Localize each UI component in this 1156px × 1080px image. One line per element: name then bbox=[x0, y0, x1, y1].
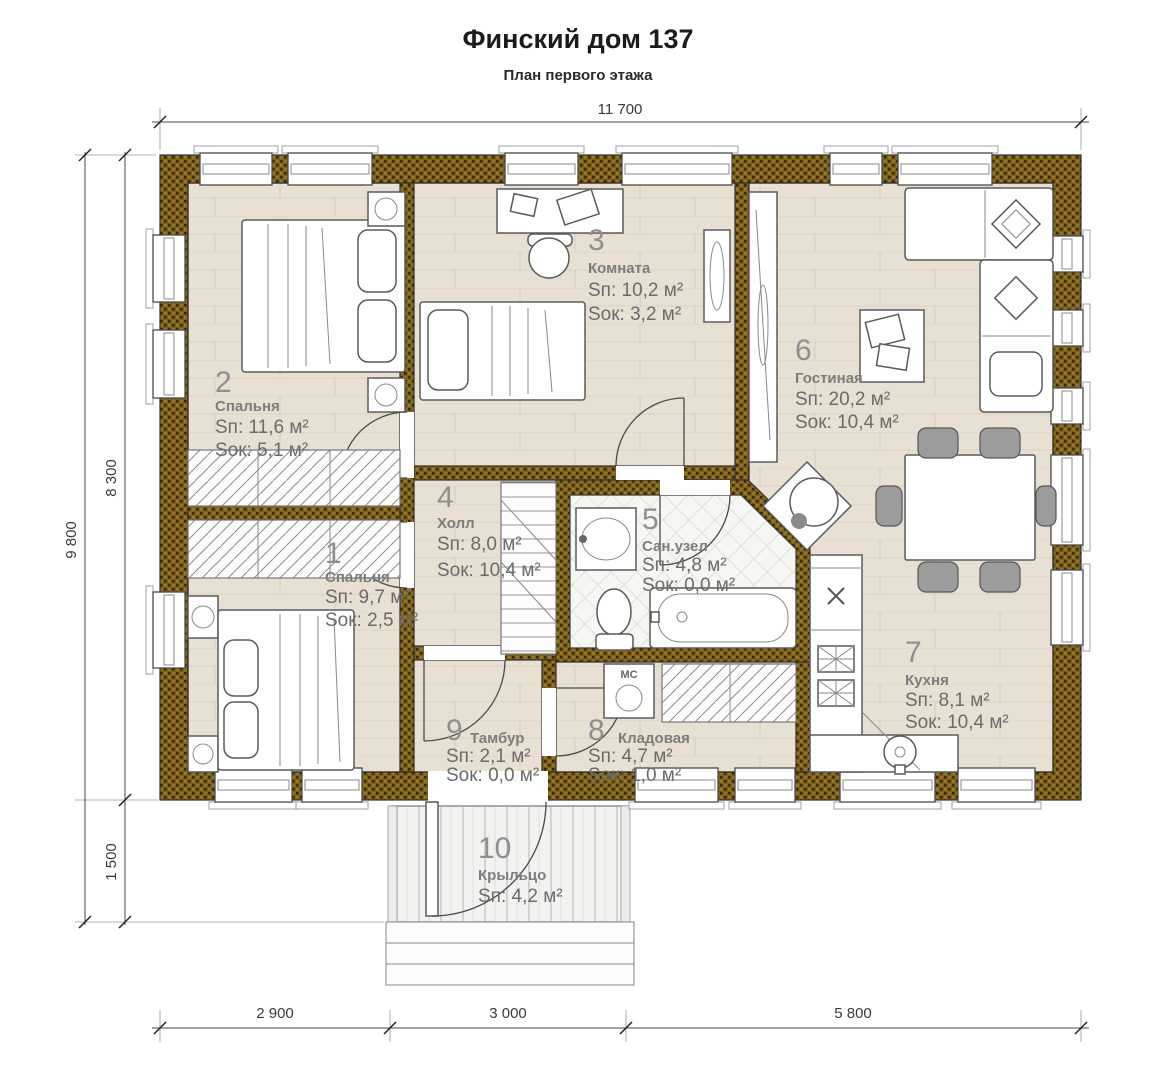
window bbox=[952, 768, 1041, 809]
window bbox=[282, 146, 378, 185]
room-area-floor: Sп: 20,2 м² bbox=[795, 389, 890, 410]
room-name: Гостиная bbox=[795, 370, 863, 387]
pillow bbox=[224, 702, 258, 758]
header: Финский дом 137 План первого этажа bbox=[463, 24, 694, 84]
dim-bottom-1-label: 2 900 bbox=[256, 1005, 294, 1022]
room-area-window: Sок: 10,4 м² bbox=[437, 560, 541, 581]
room-area-window: Sок: 5,1 м² bbox=[215, 440, 308, 461]
room-name: Спальня bbox=[215, 398, 280, 415]
room-name: Сан.узел bbox=[642, 538, 708, 555]
dim-bottom-3-label: 5 800 bbox=[834, 1005, 872, 1022]
window bbox=[1051, 304, 1090, 352]
room-number: 4 bbox=[437, 481, 454, 514]
window bbox=[834, 768, 941, 809]
pillow bbox=[358, 300, 396, 362]
dining-chair bbox=[876, 486, 902, 526]
page-title: Финский дом 137 bbox=[463, 24, 694, 54]
corner-sink-drain bbox=[791, 513, 807, 529]
room-area-floor: Sп: 10,2 м² bbox=[588, 280, 683, 301]
washing-machine-label: МС bbox=[620, 669, 637, 681]
room-name: Кладовая bbox=[618, 730, 690, 747]
floor-plan-canvas: Финский дом 137 План первого этажа 11 70… bbox=[0, 0, 1156, 1080]
page-subtitle: План первого этажа bbox=[504, 67, 654, 84]
pillow bbox=[428, 310, 468, 390]
room-area-window: Sок: 2,5 м² bbox=[325, 610, 418, 631]
window bbox=[146, 229, 185, 308]
desk-chair bbox=[529, 238, 569, 278]
room-number: 8 bbox=[588, 714, 605, 747]
house: МС bbox=[146, 146, 1090, 916]
bath-tap bbox=[651, 612, 659, 622]
round-sink bbox=[884, 736, 916, 768]
storage-furniture: МС bbox=[604, 664, 796, 722]
window bbox=[616, 146, 738, 185]
dim-left-total-label: 9 800 bbox=[63, 521, 80, 559]
room-number: 5 bbox=[642, 503, 659, 536]
toilet-tank bbox=[596, 634, 633, 650]
room-number: 9 bbox=[446, 714, 463, 747]
room-name: Тамбур bbox=[470, 730, 524, 747]
window bbox=[824, 146, 888, 185]
room-area-window: Sок: 10,4 м² bbox=[905, 712, 1009, 733]
room-area-floor: Sп: 8,0 м² bbox=[437, 534, 522, 555]
room-area-window: Sок: 3,2 м² bbox=[588, 304, 681, 325]
dining-chair bbox=[980, 428, 1020, 458]
room-number: 2 bbox=[215, 366, 232, 399]
room-area-floor: Sп: 4,7 м² bbox=[588, 746, 673, 767]
window bbox=[1051, 449, 1090, 551]
window bbox=[1051, 382, 1090, 430]
room-area-floor: Sп: 4,8 м² bbox=[642, 555, 727, 576]
room-area-floor: Sп: 11,6 м² bbox=[215, 417, 309, 438]
floor-plan-page: Финский дом 137 План первого этажа 11 70… bbox=[0, 0, 1156, 1080]
dim-bottom-2-label: 3 000 bbox=[489, 1005, 527, 1022]
papers bbox=[510, 194, 537, 217]
sink-tap bbox=[895, 765, 905, 774]
room-area-window: Sок: 10,4 м² bbox=[795, 412, 899, 433]
room-number: 10 bbox=[478, 832, 511, 865]
books bbox=[876, 344, 909, 370]
window bbox=[209, 768, 298, 809]
window bbox=[146, 586, 185, 674]
room-area-window: Sок: 1,0 м² bbox=[588, 765, 681, 786]
dim-top-label: 11 700 bbox=[598, 101, 643, 118]
room-area-floor: Sп: 8,1 м² bbox=[905, 690, 990, 711]
nightstand bbox=[368, 378, 405, 412]
room-area-floor: Sп: 9,7 м² bbox=[325, 587, 410, 608]
room-area-window: Sок: 0,0 м² bbox=[446, 765, 539, 786]
room-area-floor: Sп: 4,2 м² bbox=[478, 886, 563, 907]
room-area-floor: Sп: 2,1 м² bbox=[446, 746, 531, 767]
dining-chair bbox=[918, 428, 958, 458]
window bbox=[729, 768, 801, 809]
window bbox=[296, 768, 368, 809]
toilet-bowl bbox=[597, 589, 631, 635]
pillow bbox=[224, 640, 258, 696]
entrance-door-leaf bbox=[426, 802, 438, 916]
dining-table bbox=[905, 455, 1035, 560]
window bbox=[1051, 564, 1090, 651]
room-name: Крыльцо bbox=[478, 867, 546, 884]
dining-chair bbox=[1036, 486, 1056, 526]
bathtub bbox=[650, 588, 796, 648]
dim-left-house-label: 8 300 bbox=[103, 459, 120, 497]
room-name: Спальня bbox=[325, 569, 390, 586]
dining-chair bbox=[918, 562, 958, 592]
pillow bbox=[358, 230, 396, 292]
room-name: Холл bbox=[437, 515, 475, 532]
window bbox=[1051, 230, 1090, 278]
room-name: Комната bbox=[588, 260, 651, 277]
window bbox=[892, 146, 998, 185]
window bbox=[194, 146, 278, 185]
window bbox=[146, 324, 185, 404]
room-area-window: Sок: 0,0 м² bbox=[642, 575, 735, 596]
room-name: Кухня bbox=[905, 672, 949, 689]
window bbox=[499, 146, 584, 185]
dining-chair bbox=[980, 562, 1020, 592]
room-number: 1 bbox=[325, 537, 342, 570]
cushion bbox=[990, 352, 1042, 396]
room-number: 3 bbox=[588, 224, 605, 257]
sink-tap bbox=[579, 535, 587, 543]
dim-left-porch-label: 1 500 bbox=[103, 843, 120, 881]
room-number: 7 bbox=[905, 636, 922, 669]
nightstand bbox=[368, 192, 405, 226]
room-number: 6 bbox=[795, 334, 812, 367]
storage-rack bbox=[662, 664, 796, 722]
dresser bbox=[704, 230, 730, 322]
